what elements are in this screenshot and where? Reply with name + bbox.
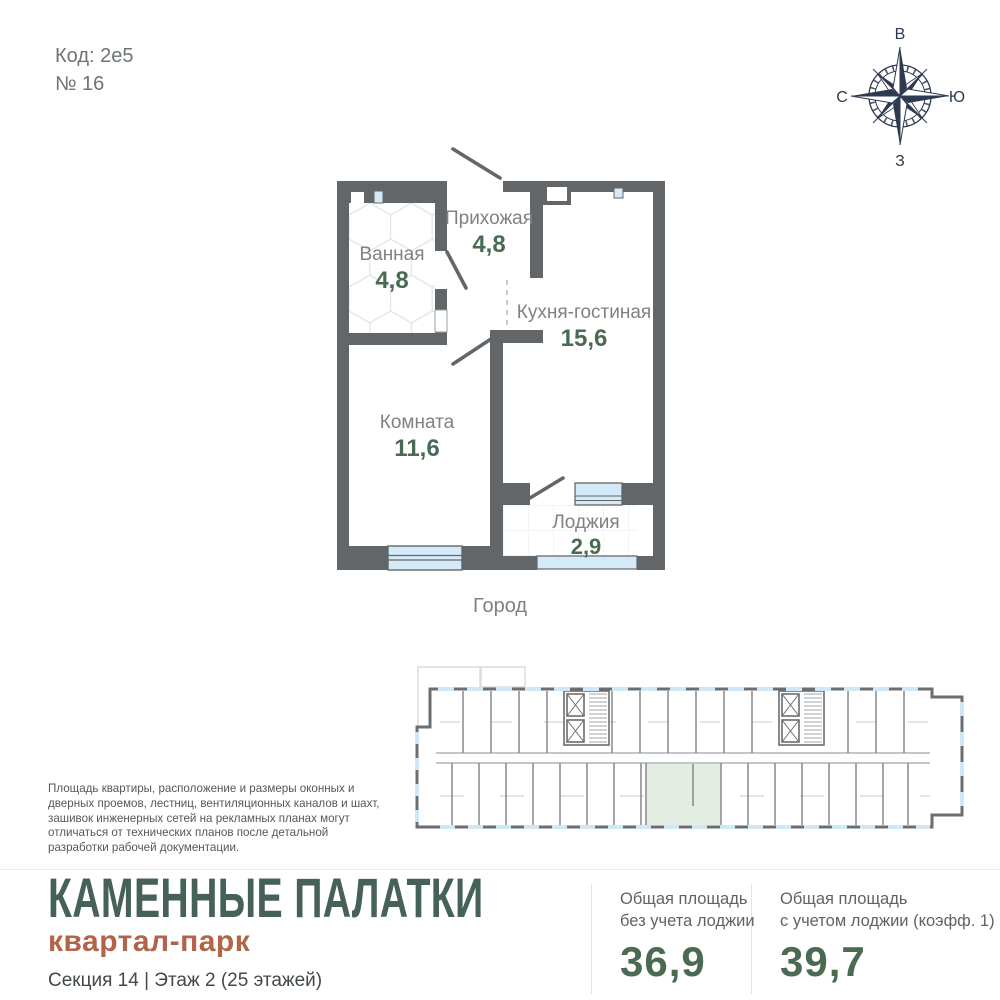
area-label-line1: Общая площадь [780,888,995,910]
room-hallway-area: 4,8 [472,231,505,258]
highlighted-unit[interactable] [646,764,721,825]
disclaimer-text: Площадь квартиры, расположение и размеры… [48,782,380,856]
bathroom-vent-icon [374,191,383,203]
area-without-loggia-block: Общая площадь без учета лоджии 36,9 [620,888,755,986]
room-kitchen-area: 15,6 [561,325,608,352]
wall-niche [351,192,364,203]
area-value-without-loggia: 36,9 [620,938,755,986]
room-bathroom-label: Ванная [359,244,424,265]
room-bedroom-area: 11,6 [394,435,439,462]
apartment-plan-svg: Ванная 4,8 Прихожая 4,8 Кухня-гостиная 1… [325,140,675,580]
bathroom-wall-recess [435,310,447,332]
room-kitchen-label: Кухня-гостиная [517,302,651,323]
room-bathroom-area: 4,8 [375,267,408,294]
area-value-with-loggia: 39,7 [780,938,995,986]
project-title: КАМЕННЫЕ ПАЛАТКИ [48,872,484,924]
area-divider-1 [591,884,592,994]
room-loggia-label: Лоджия [552,512,619,533]
compass-north-label: С [836,89,848,106]
apartment-meta: Код: 2е5 № 16 [55,42,134,98]
area-label-line1: Общая площадь [620,888,755,910]
project-subtitle: квартал-парк [48,925,670,959]
compass-rose-icon: В Ю З С [828,16,973,171]
area-label-line2: без учета лоджии [620,910,755,932]
apartment-number: № 16 [55,70,134,98]
room-hallway-label: Прихожая [445,208,533,229]
compass-west-label: З [895,153,905,170]
entry-niche [547,187,567,201]
apartment-code: Код: 2е5 [55,42,134,70]
compass-east-label: В [895,26,906,43]
orientation-label: Город [325,595,675,618]
area-with-loggia-block: Общая площадь с учетом лоджии (коэфф. 1)… [780,888,995,986]
building-plan-svg [405,650,990,845]
room-bedroom-label: Комната [380,412,455,433]
brand-block: КАМЕННЫЕ ПАЛАТКИ квартал-парк Секция 14 … [48,872,670,992]
room-loggia-area: 2,9 [571,534,602,559]
section-floor-info: Секция 14 | Этаж 2 (25 этажей) [48,970,670,992]
area-label-line2: с учетом лоджии (коэфф. 1) [780,910,995,932]
kitchen-vent-icon [614,188,623,198]
compass-south-label: Ю [949,89,965,106]
